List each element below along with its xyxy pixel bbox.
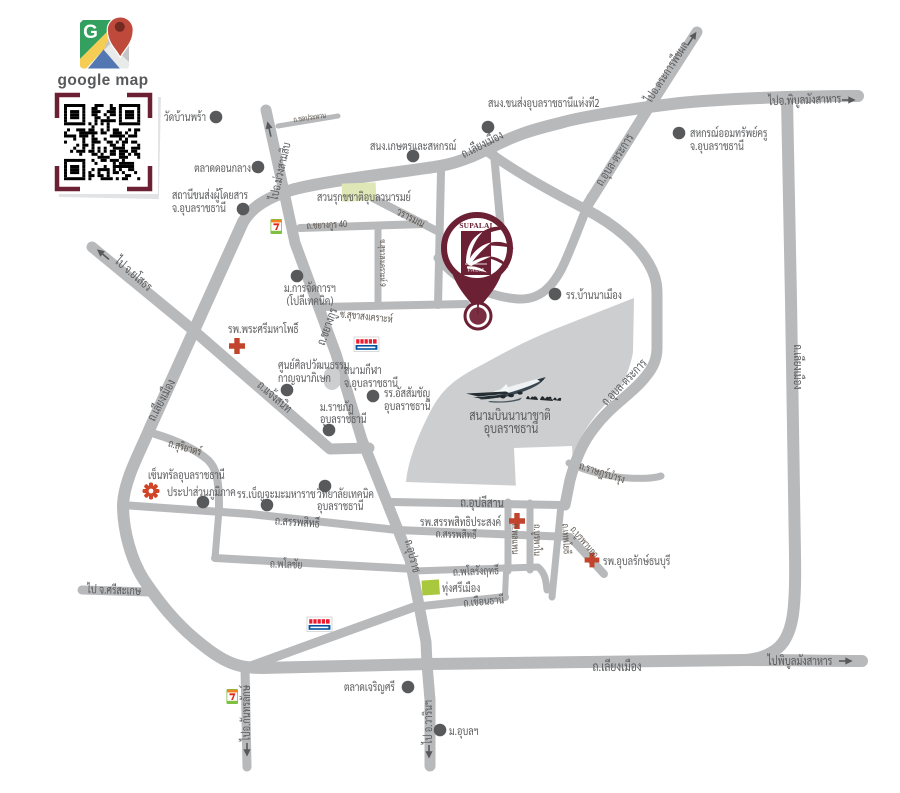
svg-text:google map: google map: [58, 72, 149, 89]
svg-text:SUPALAI: SUPALAI: [459, 221, 492, 230]
svg-text:G: G: [83, 22, 98, 43]
svg-text:PALM: PALM: [468, 268, 485, 274]
